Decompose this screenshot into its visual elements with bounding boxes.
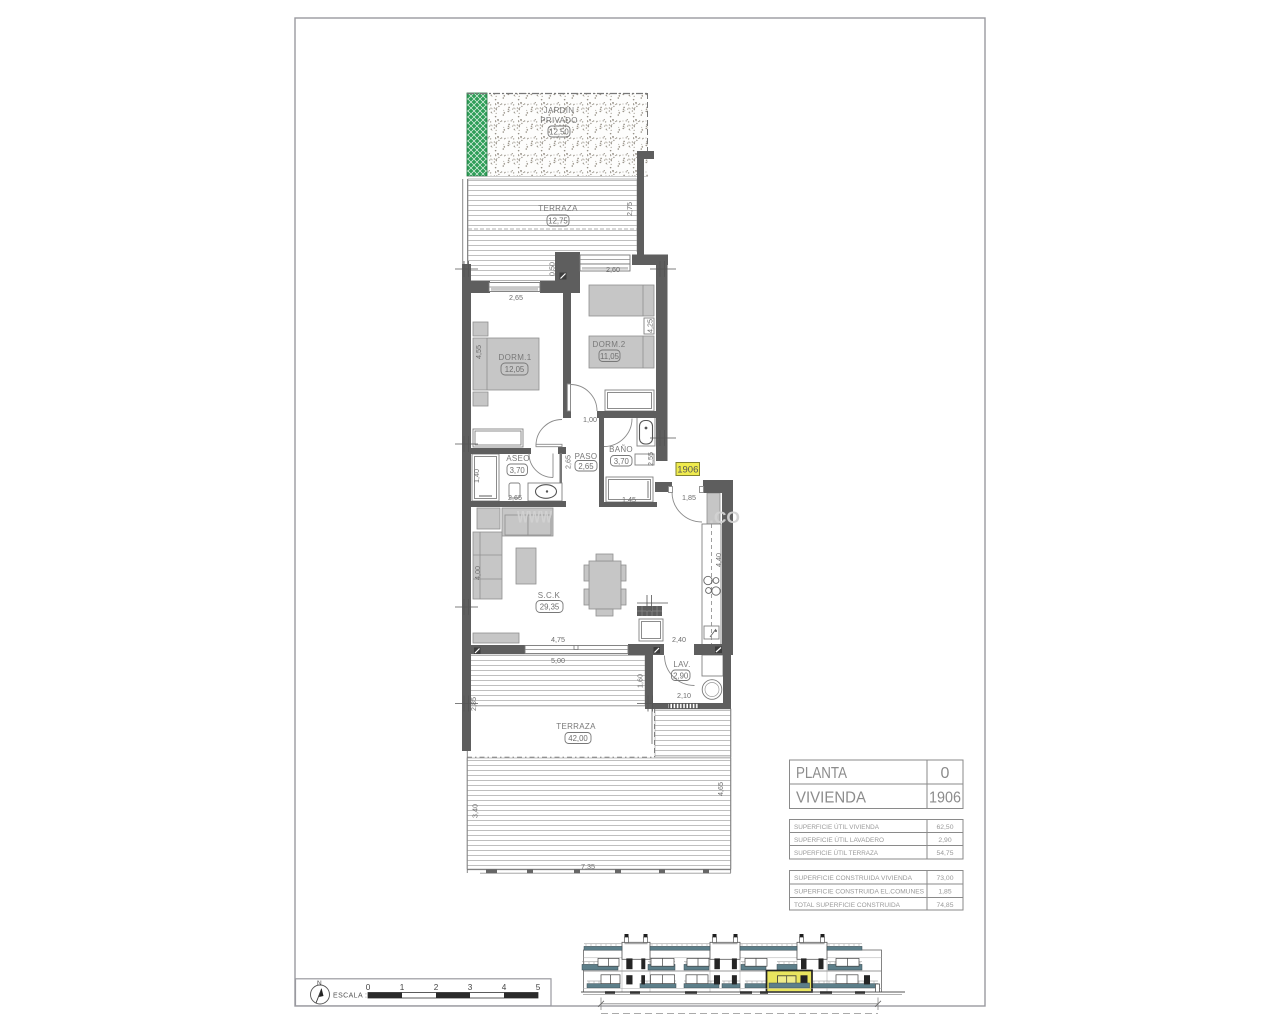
svg-text:42,00: 42,00 [568, 734, 588, 743]
svg-text:12,75: 12,75 [548, 217, 568, 226]
svg-text:2,90: 2,90 [938, 837, 951, 844]
svg-text:0,50: 0,50 [548, 262, 557, 276]
svg-text:4,40: 4,40 [714, 553, 723, 567]
svg-text:JARDIN: JARDIN [544, 106, 575, 115]
svg-text:S.C.K: S.C.K [538, 591, 561, 600]
svg-text:29,35: 29,35 [540, 603, 560, 612]
svg-text:2,65: 2,65 [564, 455, 573, 469]
svg-text:2,55: 2,55 [646, 452, 655, 466]
svg-text:5: 5 [536, 983, 541, 992]
svg-text:3: 3 [468, 983, 473, 992]
svg-text:12,05: 12,05 [505, 365, 525, 374]
svg-text:1,45: 1,45 [622, 495, 636, 504]
svg-text:2,65: 2,65 [509, 293, 523, 302]
svg-text:5,00: 5,00 [551, 656, 565, 665]
svg-text:3,40: 3,40 [471, 804, 480, 818]
svg-text:11,05: 11,05 [600, 352, 620, 361]
svg-text:ASEO: ASEO [506, 454, 529, 463]
svg-text:3,70: 3,70 [510, 466, 526, 475]
svg-text:SUPERFICIE CONSTRUIDA EL.COMUN: SUPERFICIE CONSTRUIDA EL.COMUNES [794, 888, 925, 895]
svg-text:DORM.2: DORM.2 [593, 340, 626, 349]
svg-text:SUPERFICIE ÚTIL TERRAZA: SUPERFICIE ÚTIL TERRAZA [794, 848, 879, 857]
svg-text:.CO: .CO [709, 508, 740, 527]
svg-text:2,85: 2,85 [469, 697, 478, 711]
svg-text:2,40: 2,40 [672, 635, 686, 644]
svg-text:TERRAZA: TERRAZA [556, 722, 596, 731]
svg-text:VIVIENDA: VIVIENDA [796, 790, 866, 807]
svg-text:4,25: 4,25 [646, 319, 655, 333]
svg-text:BAÑO: BAÑO [609, 445, 633, 454]
svg-text:0: 0 [941, 765, 950, 782]
svg-text:1906: 1906 [677, 465, 698, 476]
svg-text:1,00: 1,00 [583, 415, 597, 424]
svg-text:2,60: 2,60 [606, 265, 620, 274]
svg-text:4: 4 [502, 983, 507, 992]
svg-text:73,00: 73,00 [936, 875, 953, 882]
svg-text:SUPERFICIE CONSTRUIDA VIVIENDA: SUPERFICIE CONSTRUIDA VIVIENDA [794, 875, 913, 882]
svg-text:74,85: 74,85 [936, 902, 953, 909]
svg-text:2,65: 2,65 [578, 462, 594, 471]
svg-text:SUPERFICIE ÚTIL VIVIENDA: SUPERFICIE ÚTIL VIVIENDA [794, 822, 880, 831]
svg-text:TERRAZA: TERRAZA [538, 204, 578, 213]
svg-text:1,40: 1,40 [472, 469, 481, 483]
svg-text:PASO: PASO [575, 452, 598, 461]
svg-text:4,65: 4,65 [716, 782, 725, 796]
svg-text:DORM.1: DORM.1 [499, 353, 532, 362]
svg-text:SUPERFICIE ÚTIL LAVADERO: SUPERFICIE ÚTIL LAVADERO [794, 835, 884, 844]
svg-text:1906: 1906 [929, 790, 961, 807]
svg-text:4,00: 4,00 [473, 566, 482, 580]
svg-text:2,90: 2,90 [673, 671, 689, 680]
svg-text:ESCALA :: ESCALA : [333, 993, 367, 1000]
svg-text:2,65: 2,65 [508, 493, 522, 502]
svg-text:7,35: 7,35 [581, 862, 595, 871]
svg-text:TOTAL SUPERFICIE CONSTRUIDA: TOTAL SUPERFICIE CONSTRUIDA [794, 902, 901, 909]
svg-text:0: 0 [366, 983, 371, 992]
svg-text:1: 1 [400, 983, 405, 992]
svg-text:12,50: 12,50 [549, 128, 569, 137]
svg-text:LAV.: LAV. [673, 660, 690, 669]
svg-text:1,85: 1,85 [938, 888, 951, 895]
svg-text:1,60: 1,60 [636, 674, 645, 688]
svg-text:4,75: 4,75 [551, 635, 565, 644]
svg-text:2,10: 2,10 [677, 691, 691, 700]
svg-text:2: 2 [434, 983, 439, 992]
svg-text:54,75: 54,75 [936, 850, 953, 857]
svg-text:1,85: 1,85 [682, 493, 696, 502]
svg-text:N: N [317, 980, 322, 987]
svg-text:3,70: 3,70 [614, 457, 630, 466]
svg-text:PLANTA: PLANTA [796, 765, 847, 782]
svg-text:4,55: 4,55 [474, 345, 483, 359]
svg-text:2,75: 2,75 [625, 202, 634, 216]
svg-text:62,50: 62,50 [936, 824, 953, 831]
svg-text:WWW: WWW [517, 508, 553, 527]
svg-text:PRIVADO: PRIVADO [540, 116, 578, 125]
